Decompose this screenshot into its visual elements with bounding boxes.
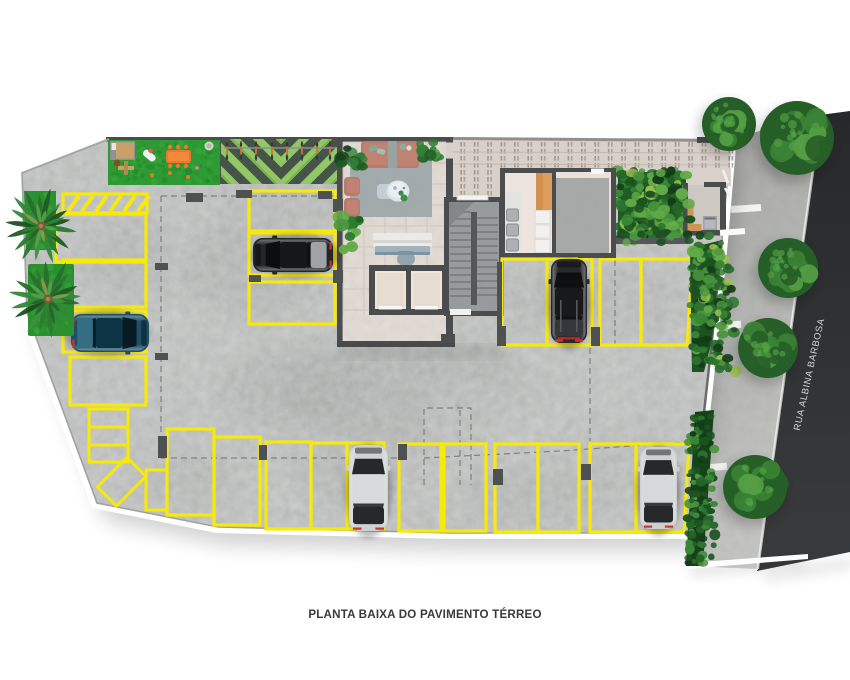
svg-text:PLANTA BAIXA DO PAVIMENTO TÉRR: PLANTA BAIXA DO PAVIMENTO TÉRREO [308, 608, 541, 621]
